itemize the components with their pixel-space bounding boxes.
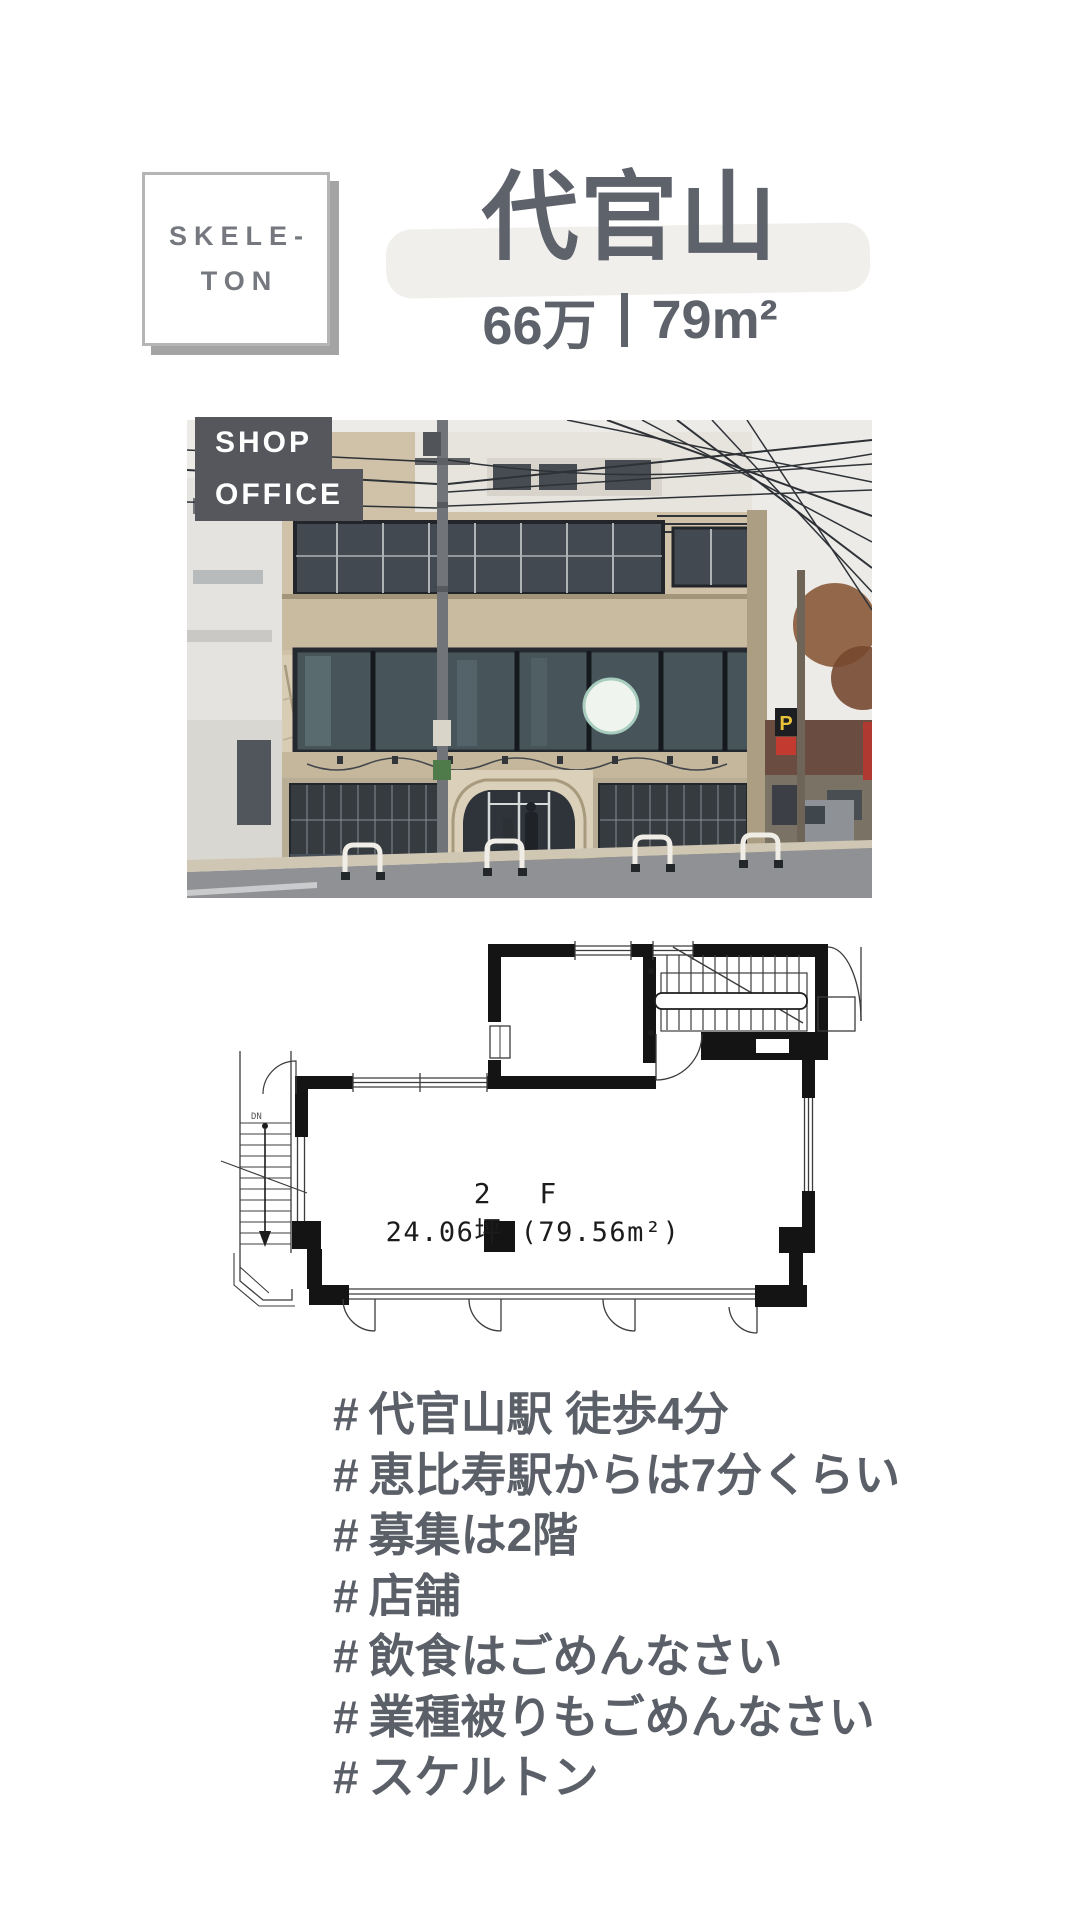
hashtag-item: #飲食はごめんなさい	[333, 1626, 900, 1687]
hashtag-item: #店舗	[333, 1566, 900, 1627]
hashtag-item: #スケルトン	[333, 1747, 900, 1808]
hashtag-item: #恵比寿駅からは7分くらい	[333, 1445, 900, 1506]
hash-symbol: #	[333, 1509, 359, 1561]
parking-sign-label: P	[779, 713, 792, 735]
hashtag-label: 飲食はごめんなさい	[369, 1630, 783, 1682]
hashtag-label: 店舗	[369, 1570, 461, 1622]
hash-symbol: #	[333, 1630, 359, 1682]
hashtag-item: #募集は2階	[333, 1505, 900, 1566]
hash-symbol: #	[333, 1751, 359, 1803]
area-label: 79m²	[652, 289, 778, 351]
floor-plan: DN 2 F 24.06坪 (79.56m²)	[155, 933, 925, 1348]
page-title: 代官山	[180, 138, 1080, 279]
plan-floor-label: 2 F	[474, 1177, 573, 1210]
hashtag-item: #業種被りもごめんなさい	[333, 1687, 900, 1748]
hashtag-label: 代官山駅 徒歩4分	[369, 1388, 729, 1440]
office-tag: OFFICE	[195, 469, 363, 521]
hash-symbol: #	[333, 1691, 359, 1743]
hashtag-label: 恵比寿駅からは7分くらい	[369, 1449, 901, 1501]
hashtag-item: #代官山駅 徒歩4分	[333, 1384, 900, 1445]
hashtag-list: #代官山駅 徒歩4分 #恵比寿駅からは7分くらい #募集は2階 #店舗 #飲食は…	[333, 1384, 900, 1808]
building-photo: P	[187, 420, 872, 898]
shop-tag: SHOP	[195, 417, 332, 469]
hash-symbol: #	[333, 1449, 359, 1501]
price-area-row: 66万 79m²	[180, 288, 1080, 352]
floor-plan-drawing: DN 2 F 24.06坪 (79.56m²)	[155, 933, 925, 1348]
hash-symbol: #	[333, 1388, 359, 1440]
price-label: 66万	[482, 281, 596, 360]
round-shop-sign	[584, 679, 638, 733]
plan-area-label: 24.06坪 (79.56m²)	[386, 1217, 681, 1248]
divider-bar	[621, 293, 628, 347]
hash-symbol: #	[333, 1570, 359, 1622]
hashtag-label: スケルトン	[369, 1751, 599, 1803]
plan-dn-label: DN	[251, 1112, 262, 1122]
parking-sign: P	[775, 708, 797, 755]
hashtag-label: 募集は2階	[369, 1509, 579, 1561]
utility-pole	[437, 420, 448, 868]
hashtag-label: 業種被りもごめんなさい	[369, 1691, 875, 1743]
